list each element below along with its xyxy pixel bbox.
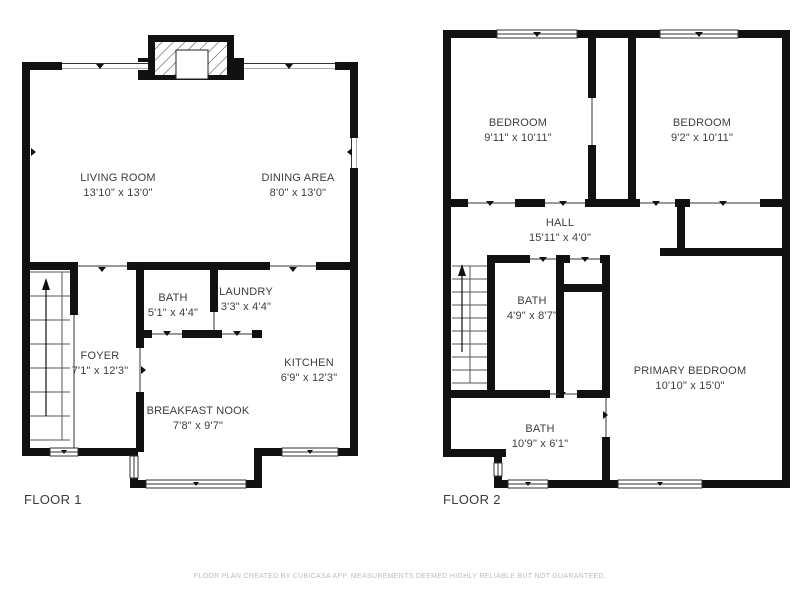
room-label-bath-floor1: BATH 5'1" x 4'4" — [148, 291, 198, 321]
floor-plan-image: LIVING ROOM 13'10" x 13'0" DINING AREA 8… — [0, 0, 800, 600]
room-dims: 7'1" x 12'3" — [72, 364, 129, 379]
room-dims: 15'11" x 4'0" — [529, 231, 591, 246]
room-label-breakfast-nook: BREAKFAST NOOK 7'8" x 9'7" — [147, 404, 250, 434]
disclaimer-text: FLOOR PLAN CREATED BY CUBICASA APP. MEAS… — [0, 573, 800, 580]
room-label-hall: HALL 15'11" x 4'0" — [529, 216, 591, 246]
room-label-foyer: FOYER 7'1" x 12'3" — [72, 349, 129, 379]
room-name: HALL — [529, 216, 591, 231]
fireplace-icon — [138, 35, 244, 80]
room-name: BATH — [512, 422, 569, 437]
room-name: BEDROOM — [484, 116, 552, 131]
room-name: KITCHEN — [281, 356, 338, 371]
room-dims: 9'2" x 10'11" — [671, 131, 733, 146]
room-dims: 10'9" x 6'1" — [512, 437, 569, 452]
room-name: LIVING ROOM — [80, 171, 156, 186]
room-label-living-room: LIVING ROOM 13'10" x 13'0" — [80, 171, 156, 201]
room-dims: 10'10" x 15'0" — [634, 379, 747, 394]
stairs-icon-floor2 — [452, 264, 487, 383]
room-dims: 8'0" x 13'0" — [261, 186, 334, 201]
floor2-walls — [443, 30, 790, 488]
room-name: PRIMARY BEDROOM — [634, 364, 747, 379]
room-name: DINING AREA — [261, 171, 334, 186]
room-label-laundry: LAUNDRY 3'3" x 4'4" — [219, 285, 273, 315]
room-dims: 3'3" x 4'4" — [219, 300, 273, 315]
room-label-bath-mid: BATH 4'9" x 8'7" — [507, 294, 557, 324]
room-name: BEDROOM — [671, 116, 733, 131]
room-label-bedroom-right: BEDROOM 9'2" x 10'11" — [671, 116, 733, 146]
room-name: BATH — [507, 294, 557, 309]
room-name: FOYER — [72, 349, 129, 364]
room-name: BREAKFAST NOOK — [147, 404, 250, 419]
stairs-up-icon-floor1 — [30, 272, 70, 440]
floor-plan-canvas — [0, 0, 800, 600]
floor2-title: FLOOR 2 — [443, 492, 501, 507]
floor1-title: FLOOR 1 — [24, 492, 82, 507]
room-label-dining-area: DINING AREA 8'0" x 13'0" — [261, 171, 334, 201]
room-dims: 13'10" x 13'0" — [80, 186, 156, 201]
room-label-bedroom-left: BEDROOM 9'11" x 10'11" — [484, 116, 552, 146]
room-name: BATH — [148, 291, 198, 306]
room-dims: 9'11" x 10'11" — [484, 131, 552, 146]
room-dims: 6'9" x 12'3" — [281, 371, 338, 386]
room-label-bath-bottom: BATH 10'9" x 6'1" — [512, 422, 569, 452]
room-dims: 7'8" x 9'7" — [147, 419, 250, 434]
room-label-kitchen: KITCHEN 6'9" x 12'3" — [281, 356, 338, 386]
room-name: LAUNDRY — [219, 285, 273, 300]
room-dims: 5'1" x 4'4" — [148, 306, 198, 321]
room-dims: 4'9" x 8'7" — [507, 309, 557, 324]
room-label-primary-bedroom: PRIMARY BEDROOM 10'10" x 15'0" — [634, 364, 747, 394]
